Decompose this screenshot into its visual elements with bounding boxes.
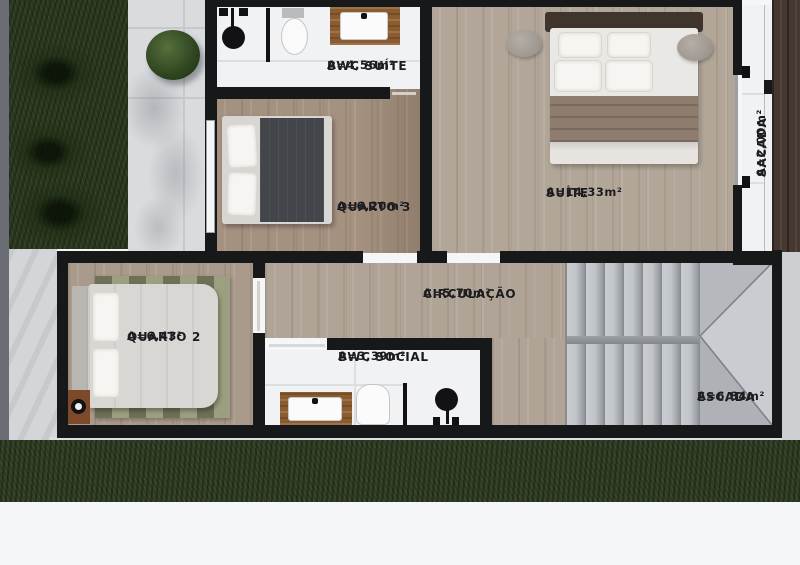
- wall-suite-sacada-upper: [733, 0, 742, 75]
- circulacao-floor: [265, 263, 567, 338]
- stairs-mid-divider: [567, 336, 700, 344]
- wall-left-lower: [57, 251, 68, 438]
- room-area: A=4,56m²: [327, 57, 395, 74]
- wall-fitting: [239, 8, 248, 16]
- suite-bed-foot-sheet: [550, 142, 698, 164]
- front-lawn: [0, 440, 800, 502]
- stairs-lower-flight: [567, 344, 700, 425]
- shower-head-icon: [222, 26, 245, 49]
- railing-post: [764, 80, 772, 94]
- shower-fitting: [433, 417, 440, 425]
- street-strip: [0, 0, 9, 441]
- wall-quarto2-right-lower: [253, 333, 265, 438]
- room-area: A=6,20m²: [337, 198, 405, 215]
- toilet-icon: [356, 384, 390, 425]
- wall-bwc-suite-bottom: [215, 87, 390, 99]
- wall-quarto2-right-upper: [253, 263, 265, 278]
- door-stub: [742, 66, 750, 78]
- suite-bed-blanket: [550, 96, 698, 142]
- pillow: [92, 348, 120, 398]
- wall-main-horizontal-c: [500, 251, 772, 263]
- wall-fitting: [219, 8, 228, 16]
- wall-quarto3-suite: [420, 0, 432, 263]
- door-leaf: [269, 344, 325, 347]
- quarto3-floor-shade: [358, 89, 422, 253]
- pouf: [677, 34, 713, 61]
- pillow: [607, 32, 651, 58]
- plant: [14, 122, 90, 182]
- sliding-glass-door: [735, 75, 738, 185]
- shower-partition: [403, 383, 407, 425]
- quarto2-round-object: [71, 399, 86, 414]
- stairs-upper-flight: [567, 263, 700, 336]
- wall-suite-sacada-lower: [733, 185, 742, 265]
- deck-strip-right: [772, 0, 800, 252]
- toilet-tank: [282, 8, 304, 18]
- pouf: [506, 30, 542, 57]
- toilet-icon: [281, 18, 308, 55]
- shower-head-icon: [435, 388, 458, 411]
- room-area: A=6,43²: [127, 328, 182, 345]
- wall-sacada-bottom: [733, 255, 772, 265]
- pavement-right: [782, 252, 800, 441]
- plant: [20, 42, 100, 104]
- pillow: [554, 60, 602, 92]
- pillow: [558, 32, 602, 58]
- room-area: A=14,33m²: [546, 184, 622, 201]
- door-leaf: [257, 281, 260, 331]
- room-area: A=3,39m²: [338, 348, 406, 365]
- quarto3-window: [206, 120, 215, 233]
- floor-plan: BWC SUÍTE A=4,56m² QUARTO 3 A=6,20m² SUÍ…: [0, 0, 800, 565]
- wall-main-horizontal-b: [417, 251, 447, 263]
- door-leaf: [392, 92, 416, 95]
- room-area: A=5,70m²: [423, 285, 491, 302]
- wall-right-exterior: [772, 250, 782, 438]
- tree-shadow: [128, 60, 215, 250]
- tile-joint: [742, 93, 765, 95]
- wall-top-exterior: [205, 0, 742, 7]
- faucet-icon: [361, 13, 367, 19]
- tree: [146, 30, 200, 80]
- bottom-margin: [0, 502, 800, 565]
- door-stub: [742, 176, 750, 188]
- wall-bottom-exterior: [57, 425, 782, 438]
- pillow: [226, 171, 258, 216]
- wall-bwc-social-right: [480, 338, 492, 438]
- room-area: A=2,00m²: [753, 109, 770, 177]
- faucet-icon: [312, 398, 318, 404]
- shower-fitting: [452, 417, 459, 425]
- shower-partition: [266, 8, 270, 62]
- circulacao-floor-lower: [492, 338, 567, 425]
- pillow: [226, 123, 258, 169]
- tile-joint: [128, 27, 215, 29]
- pillow: [92, 292, 120, 342]
- plant: [22, 180, 106, 246]
- pillow: [605, 60, 653, 92]
- quarto3-bed-blanket: [260, 118, 324, 222]
- room-area: A=6,84m²: [697, 388, 765, 405]
- pavement-lower-left: [9, 249, 57, 441]
- wall-main-horizontal-a: [57, 251, 363, 263]
